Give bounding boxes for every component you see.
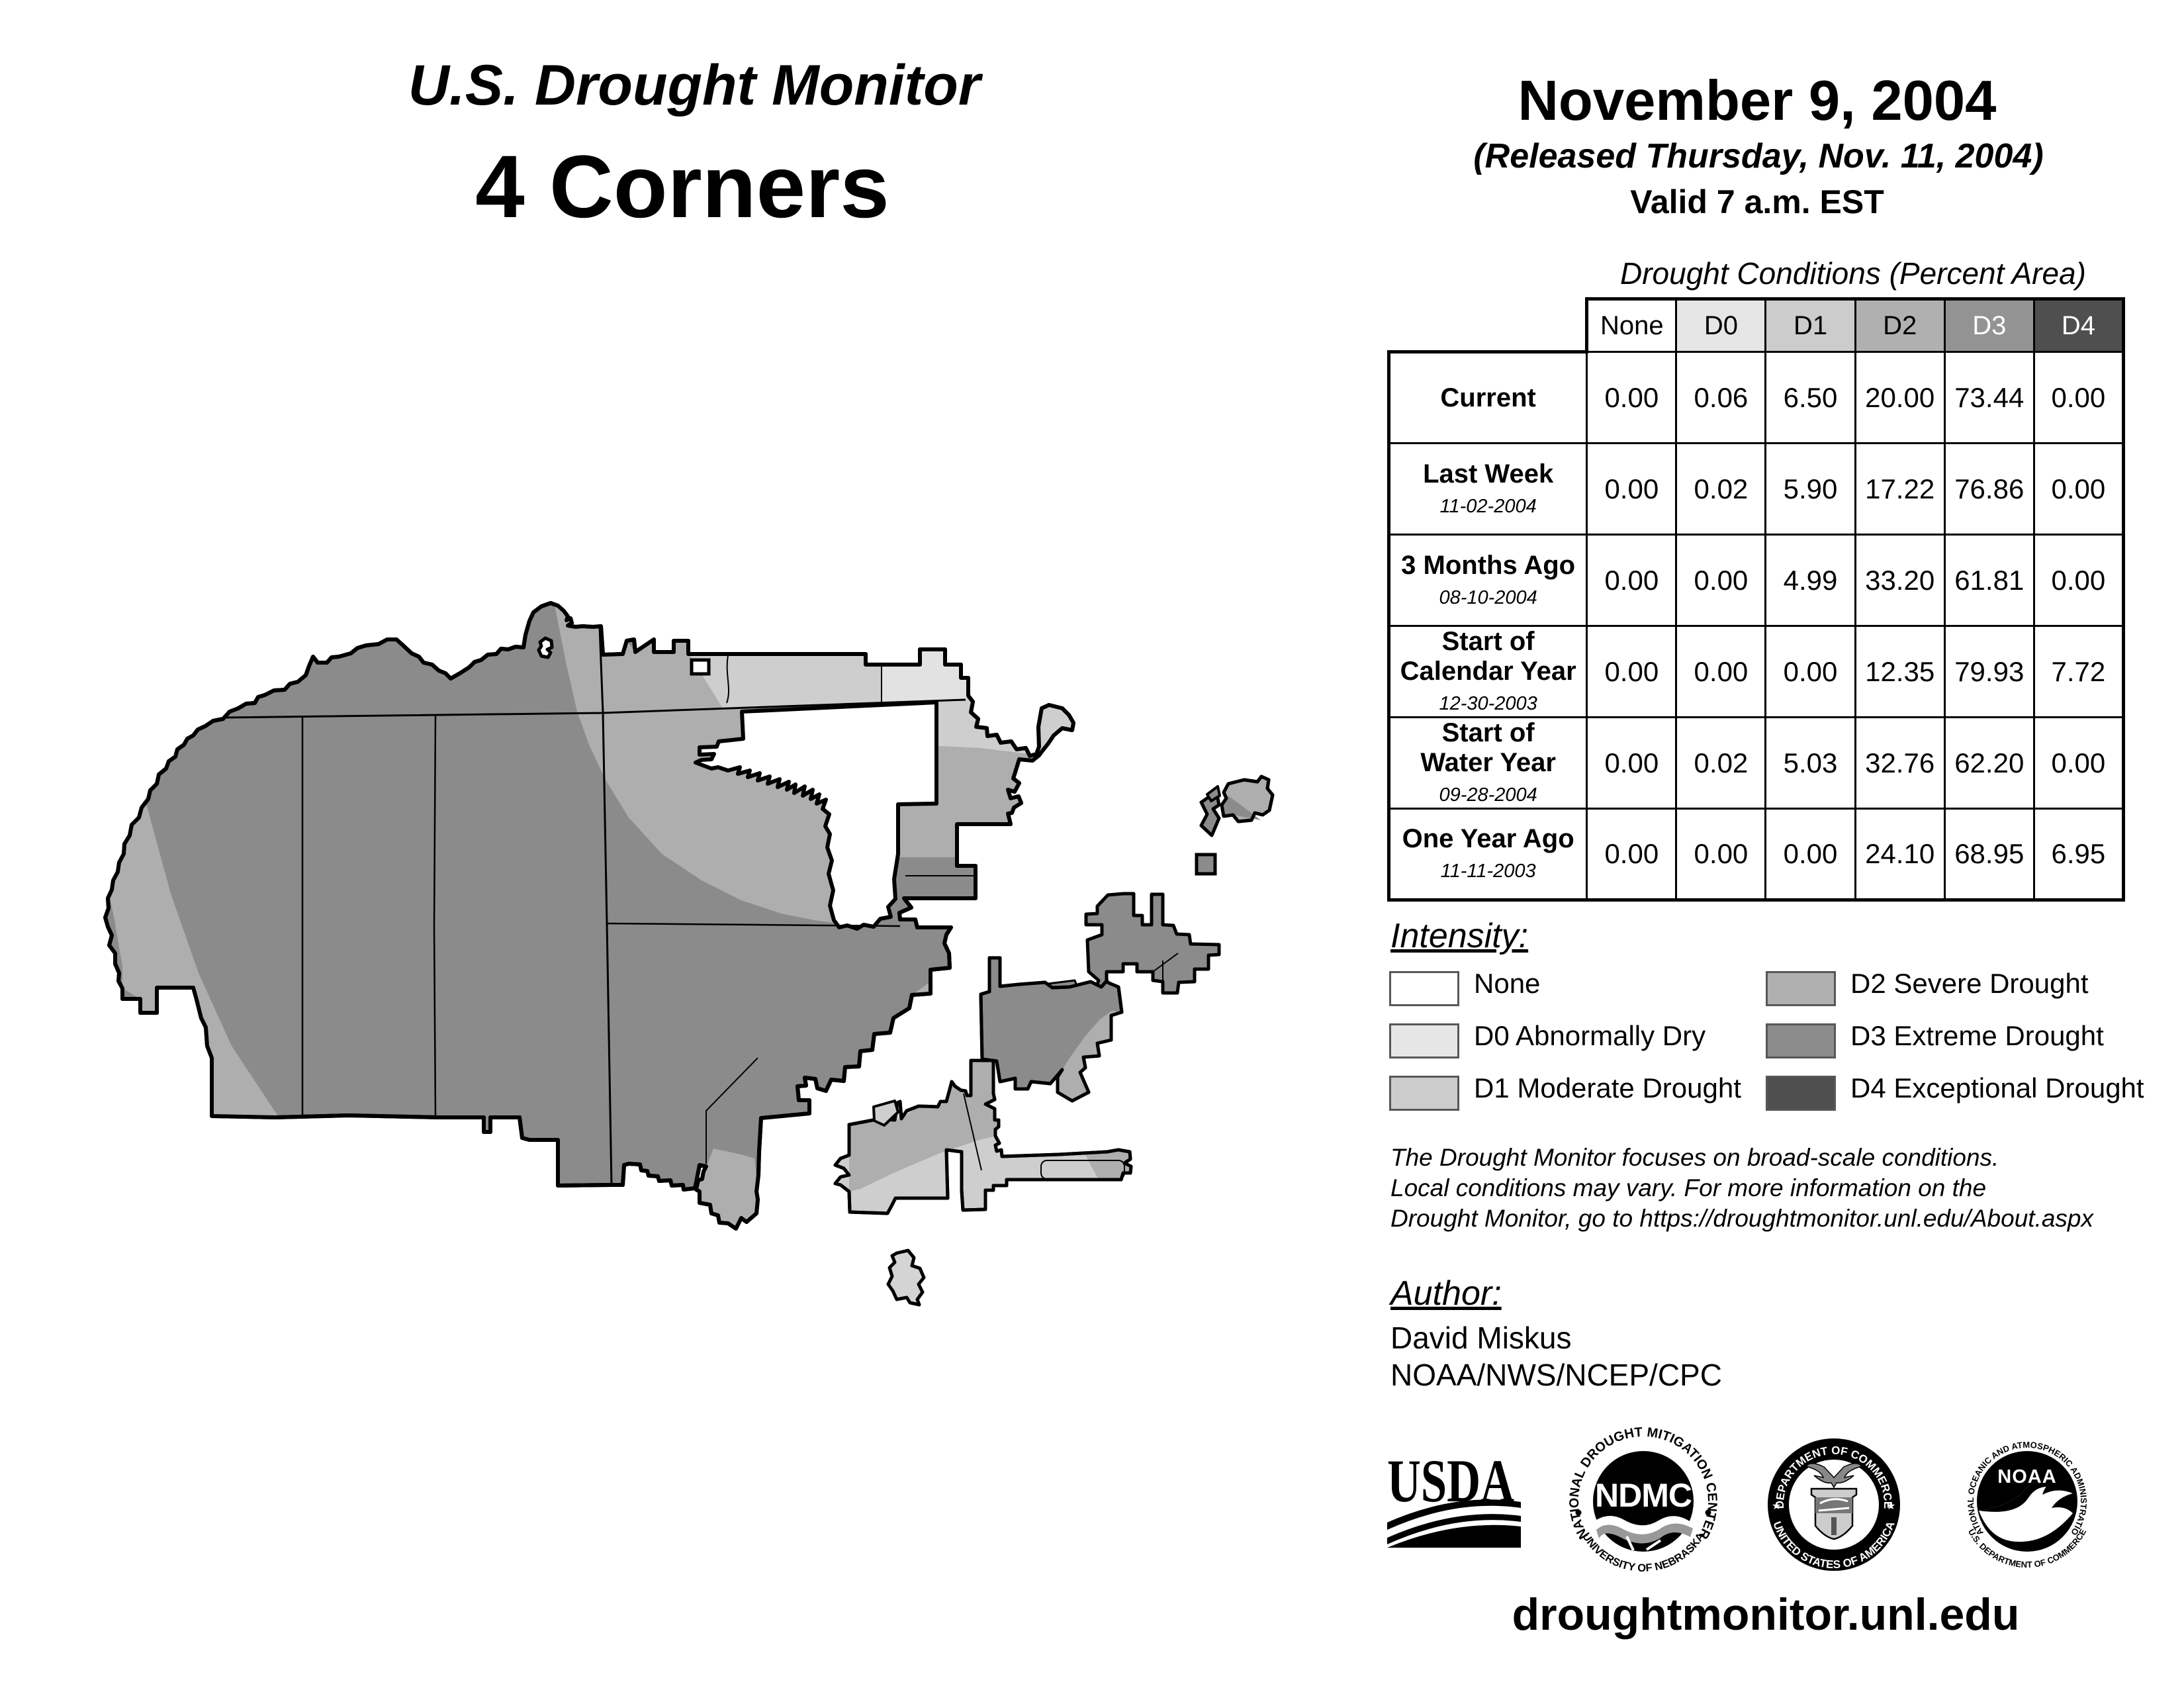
svg-text:NDMC: NDMC xyxy=(1595,1477,1692,1514)
svg-text:★: ★ xyxy=(1886,1501,1895,1512)
svg-text:NOAA: NOAA xyxy=(1997,1466,2056,1487)
svg-text:★: ★ xyxy=(1772,1501,1781,1512)
